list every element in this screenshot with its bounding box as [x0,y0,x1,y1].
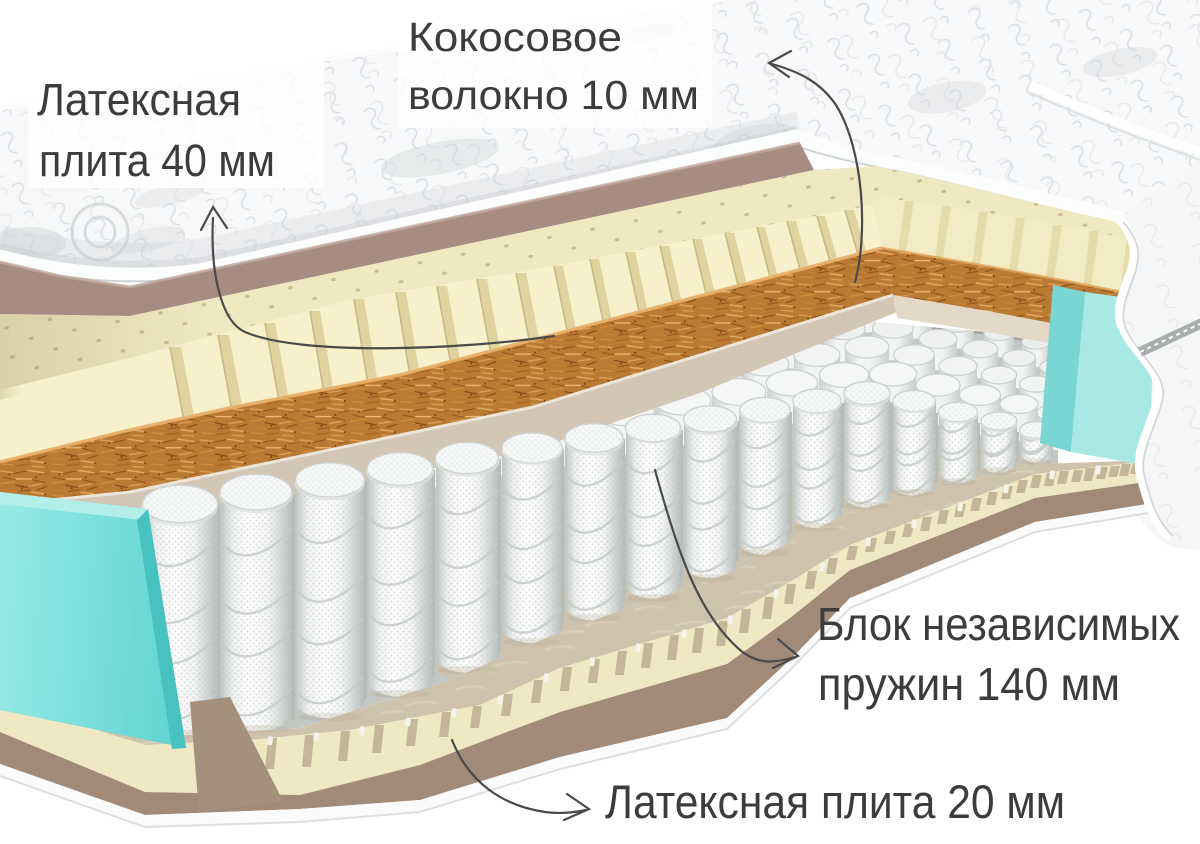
svg-text:Латексная: Латексная [37,74,241,125]
svg-text:Блок независимых: Блок независимых [817,598,1180,650]
svg-text:Кокосовое: Кокосовое [408,14,622,60]
svg-text:плита 40 мм: плита 40 мм [39,135,275,186]
svg-text:волокно 10 мм: волокно 10 мм [408,72,699,118]
svg-text:пружин 140 мм: пружин 140 мм [818,658,1120,710]
svg-text:Латексная плита 20 мм: Латексная плита 20 мм [605,775,1065,828]
